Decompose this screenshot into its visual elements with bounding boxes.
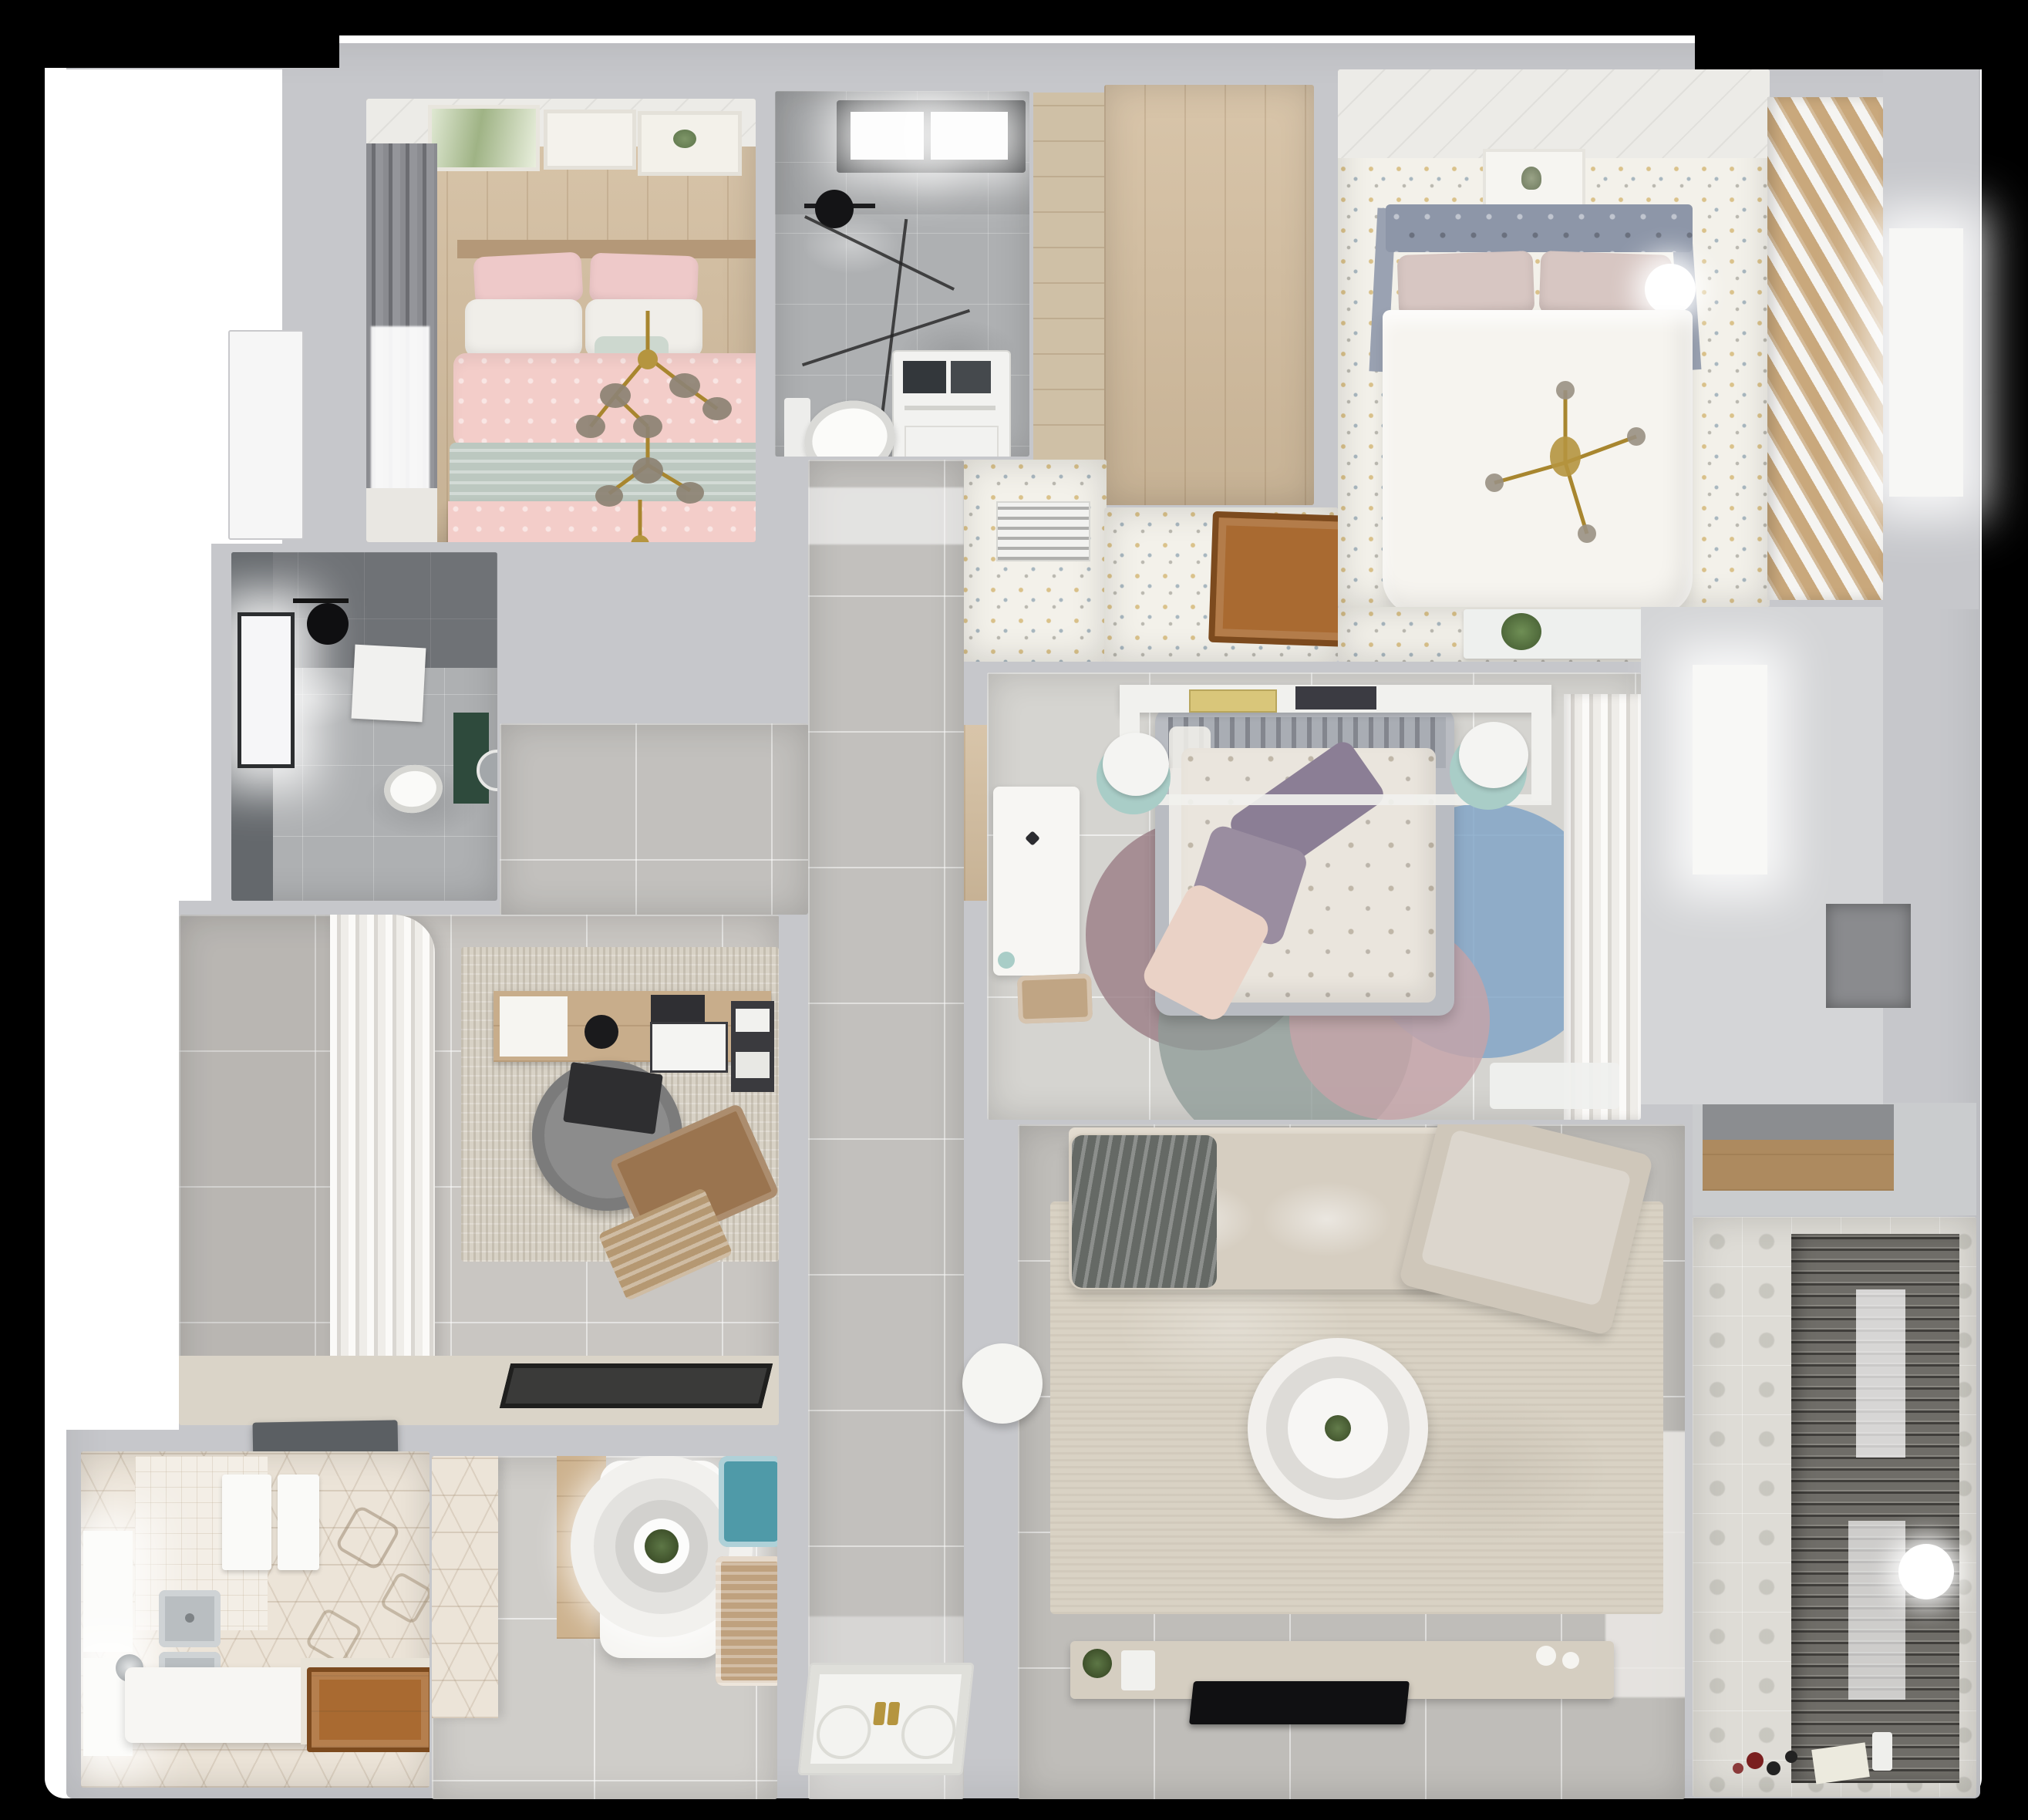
shelf-papers bbox=[736, 1052, 770, 1078]
washer-slot bbox=[905, 406, 995, 410]
threshold-bright bbox=[808, 487, 964, 544]
window-glow bbox=[371, 326, 430, 496]
washer-screen bbox=[903, 361, 946, 393]
white-desk bbox=[993, 787, 1080, 976]
cutting-board bbox=[278, 1475, 319, 1570]
right-top-wall-zone bbox=[1883, 69, 1979, 609]
niche-dark-band bbox=[1703, 1104, 1894, 1140]
cloth bbox=[1811, 1742, 1870, 1784]
black-doormat bbox=[500, 1363, 773, 1408]
leaf-motif bbox=[673, 130, 696, 148]
right-mid-wall-zone bbox=[1641, 607, 1883, 1104]
room-master-bedroom bbox=[1338, 69, 1770, 607]
art-sketch-motif bbox=[1521, 167, 1541, 190]
window-sliver bbox=[1848, 1521, 1905, 1700]
exterior-light-left-mid bbox=[66, 540, 211, 901]
room-hall-nook bbox=[1104, 85, 1314, 505]
black-window bbox=[837, 100, 1026, 173]
gold-chandelier-foot-icon bbox=[540, 500, 740, 542]
monitor bbox=[650, 1022, 728, 1073]
washer-panel bbox=[905, 426, 999, 457]
hex-motif bbox=[379, 1570, 430, 1625]
curtain-wardrobe bbox=[1564, 694, 1641, 1120]
washer-unit bbox=[892, 350, 1011, 457]
shower-arm bbox=[293, 598, 349, 603]
left-shadow bbox=[179, 915, 333, 1425]
table-plant-icon bbox=[1325, 1415, 1351, 1441]
exterior-light-left-low bbox=[66, 899, 179, 1430]
frame-notch-top-right bbox=[1695, 0, 2028, 69]
door-opening-bright bbox=[1693, 665, 1767, 875]
teal-bottle bbox=[998, 952, 1015, 969]
glass-screen-edge bbox=[804, 215, 955, 291]
toy bbox=[1767, 1761, 1780, 1775]
wainscot-panel bbox=[366, 488, 437, 542]
console-plant-icon bbox=[1083, 1649, 1112, 1678]
table-plant-icon bbox=[645, 1529, 679, 1563]
room-dining bbox=[432, 1456, 777, 1799]
door-arc-motif bbox=[814, 1705, 874, 1759]
tan-wall-strip bbox=[1033, 93, 1104, 461]
sphere-lamp bbox=[1898, 1544, 1954, 1599]
sink-drain bbox=[185, 1613, 194, 1623]
plant-console bbox=[1464, 609, 1647, 659]
toy bbox=[1747, 1752, 1764, 1769]
room-balcony bbox=[1693, 1217, 1976, 1797]
wood-shelf bbox=[1703, 1140, 1894, 1191]
gold-cross-chandelier-icon bbox=[1465, 362, 1666, 563]
desk-paper bbox=[500, 996, 568, 1057]
toilet-bowl bbox=[797, 393, 902, 457]
bottle bbox=[1872, 1732, 1892, 1771]
console-box bbox=[1121, 1650, 1155, 1690]
gray-throw bbox=[1072, 1135, 1217, 1288]
frame-notch-top-left bbox=[0, 0, 339, 68]
entry-door-panel bbox=[797, 1663, 974, 1775]
door-arc-motif bbox=[899, 1705, 958, 1759]
hex-accent-wall bbox=[432, 1456, 498, 1718]
bridge-shelf-post-right bbox=[1531, 685, 1551, 800]
door-opening-bright bbox=[1889, 228, 1963, 497]
island-tub bbox=[125, 1667, 327, 1743]
room-inner-hall-a bbox=[960, 460, 1107, 662]
books-yellow bbox=[1189, 689, 1277, 713]
hex-motif bbox=[305, 1607, 363, 1666]
console-candle bbox=[1562, 1652, 1579, 1669]
left-door-panel bbox=[228, 330, 304, 540]
pillow-blush-left bbox=[1397, 251, 1535, 318]
wood-door-panel bbox=[307, 1667, 430, 1752]
room-bathroom-top bbox=[775, 91, 1029, 457]
toy bbox=[1733, 1763, 1743, 1774]
desk-lamp-icon bbox=[584, 1015, 618, 1049]
window bbox=[237, 612, 295, 768]
window-glow bbox=[83, 1531, 133, 1652]
room-bedroom-2 bbox=[987, 672, 1641, 1120]
ceiling-trim-band bbox=[1338, 69, 1770, 158]
steel-sink bbox=[159, 1590, 221, 1647]
window-pane bbox=[851, 112, 924, 160]
toilet-bowl bbox=[381, 761, 446, 817]
books-dark bbox=[1295, 686, 1376, 709]
floorplan-canvas bbox=[0, 0, 2028, 1820]
room-bedroom-pink bbox=[366, 99, 756, 542]
toy bbox=[1785, 1751, 1797, 1763]
sphere-lamp bbox=[1645, 264, 1696, 315]
laptop-tray bbox=[563, 1062, 663, 1134]
room-inner-hall-b bbox=[1104, 507, 1338, 662]
balcony-shelf-niche bbox=[1693, 1103, 1976, 1215]
hex-motif bbox=[334, 1504, 401, 1571]
room-study bbox=[179, 915, 779, 1425]
gold-handle-icon bbox=[873, 1702, 886, 1725]
desk-chair bbox=[1017, 973, 1093, 1023]
room-corridor-side bbox=[500, 723, 808, 915]
art-frame-botanical bbox=[428, 105, 540, 171]
room-bathroom-dark bbox=[231, 552, 497, 901]
window-pane bbox=[931, 112, 1008, 160]
ac-vent-grille bbox=[996, 501, 1090, 561]
rain-shower-head-icon bbox=[307, 603, 349, 645]
curtain-wardrobe bbox=[330, 915, 435, 1393]
room-living bbox=[1018, 1124, 1685, 1799]
floor-mat bbox=[1490, 1063, 1619, 1109]
stool-left-top bbox=[1103, 733, 1169, 796]
gold-chandelier-icon bbox=[532, 292, 756, 531]
washer-screen bbox=[951, 361, 991, 393]
corridor-wood-strip bbox=[964, 725, 987, 901]
window-sliver bbox=[1856, 1289, 1905, 1458]
tufted-headboard bbox=[1386, 204, 1693, 252]
gold-handle-icon bbox=[887, 1702, 900, 1725]
potted-plant-icon bbox=[1501, 613, 1541, 650]
rattan-chair bbox=[716, 1556, 777, 1686]
cutting-board bbox=[222, 1475, 271, 1570]
side-shelf bbox=[731, 1001, 774, 1092]
towel-square bbox=[352, 645, 426, 723]
shelf-papers bbox=[736, 1009, 770, 1032]
room-corridor-vertical bbox=[808, 460, 964, 1799]
room-kitchen bbox=[81, 1451, 430, 1788]
stool-right-top bbox=[1459, 722, 1528, 788]
flat-tv bbox=[1189, 1681, 1410, 1724]
dark-niche bbox=[1826, 904, 1911, 1008]
console-candle bbox=[1536, 1646, 1556, 1666]
wood-floor-hatch bbox=[1208, 511, 1338, 647]
teal-chair bbox=[719, 1456, 777, 1547]
side-table-round bbox=[962, 1343, 1043, 1424]
slatted-wardrobe bbox=[1767, 97, 1883, 600]
art-frame-script bbox=[544, 110, 636, 170]
